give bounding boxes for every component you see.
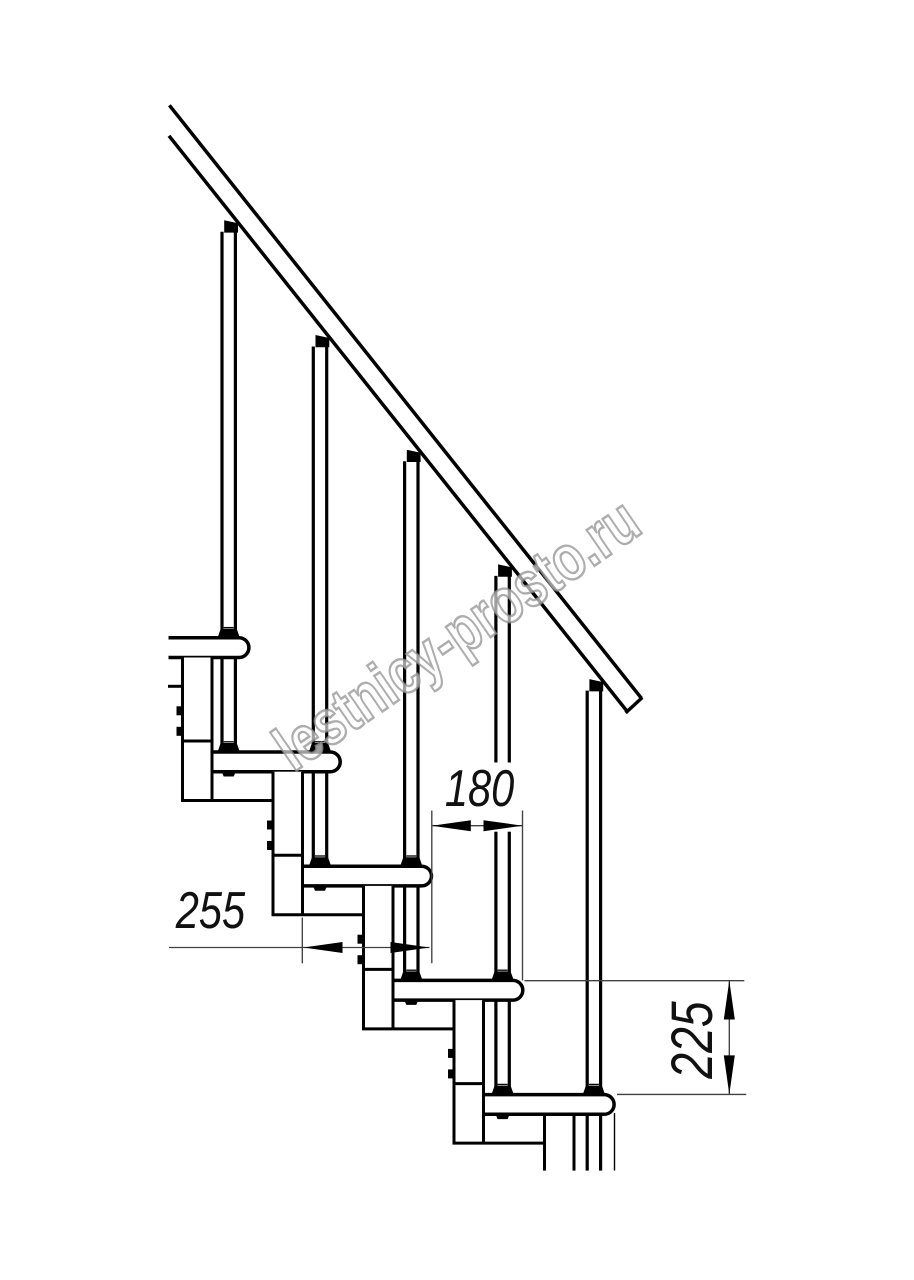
svg-text:255: 255	[175, 881, 246, 940]
svg-text:180: 180	[445, 759, 514, 818]
svg-text:225: 225	[660, 1001, 725, 1080]
